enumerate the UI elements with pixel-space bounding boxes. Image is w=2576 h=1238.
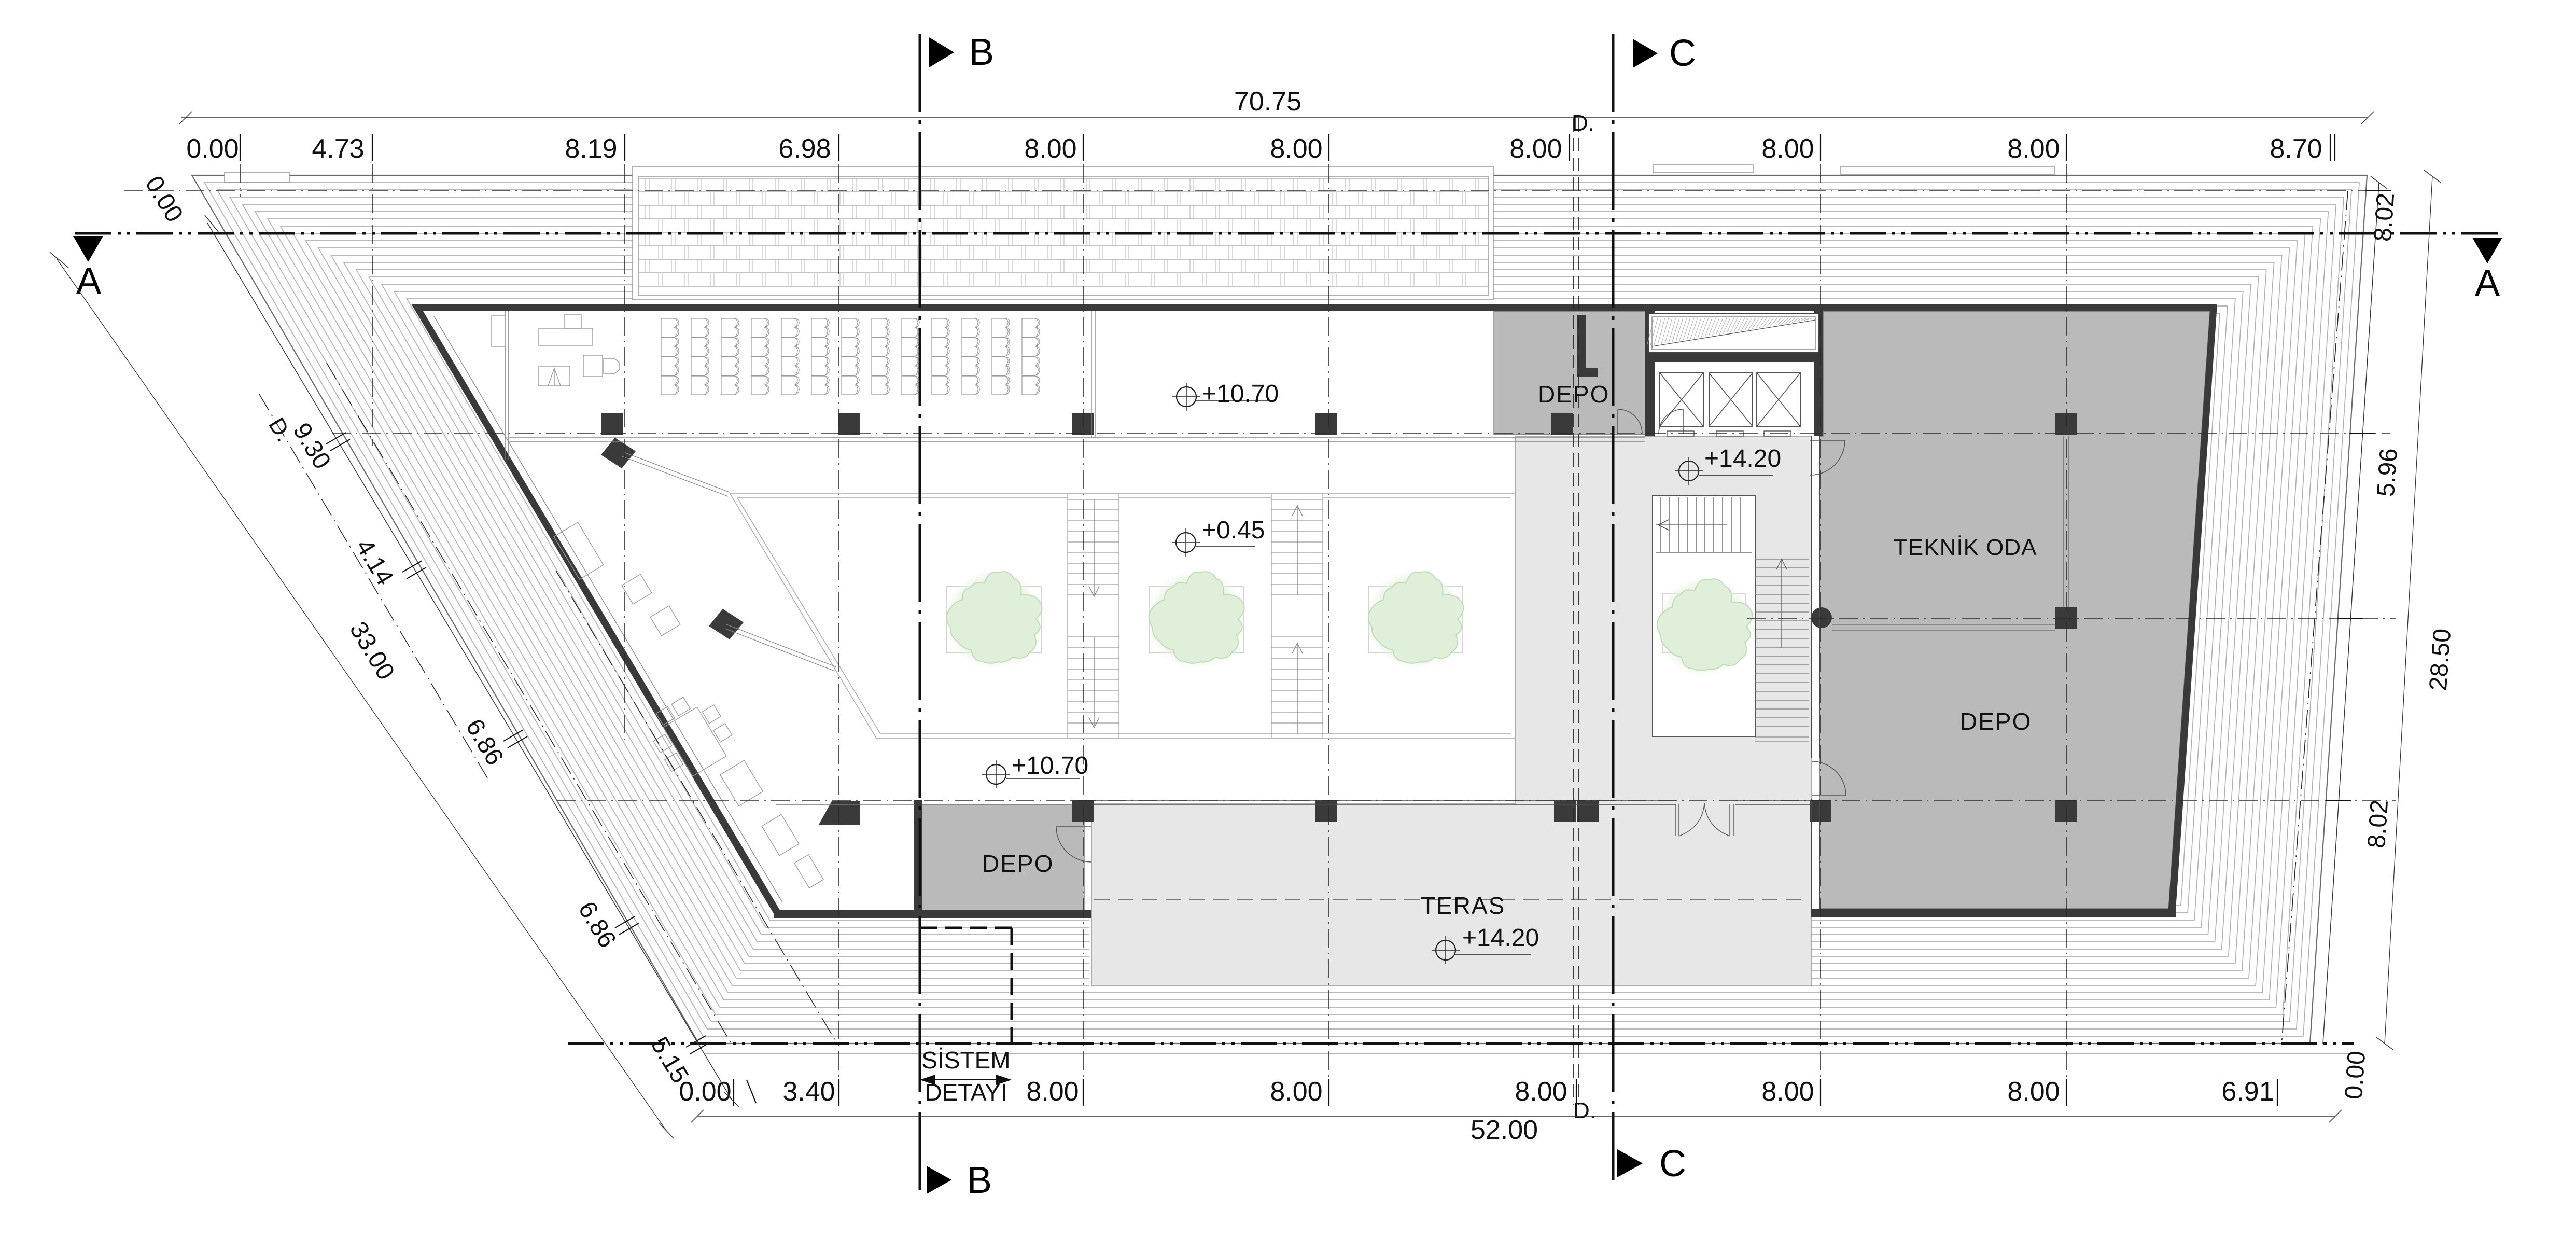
svg-text:DEPO: DEPO: [1538, 381, 1609, 408]
svg-text:DEPO: DEPO: [1960, 708, 2032, 735]
svg-text:0.00: 0.00: [679, 1077, 731, 1107]
svg-text:8.02: 8.02: [2369, 192, 2400, 242]
svg-text:8.00: 8.00: [1270, 134, 1322, 164]
svg-text:8.00: 8.00: [1515, 1077, 1567, 1107]
svg-text:TEKNİK ODA: TEKNİK ODA: [1894, 535, 2037, 560]
svg-text:DEPO: DEPO: [982, 850, 1054, 877]
svg-text:DETAYI: DETAYI: [925, 1079, 1007, 1106]
svg-text:8.00: 8.00: [1026, 1077, 1079, 1107]
svg-text:+14.20: +14.20: [1704, 445, 1781, 472]
svg-text:3.40: 3.40: [782, 1077, 835, 1107]
svg-text:28.50: 28.50: [2425, 628, 2456, 692]
svg-text:8.02: 8.02: [2363, 799, 2393, 849]
svg-text:D.: D.: [1573, 1098, 1596, 1123]
svg-text:+10.70: +10.70: [1012, 752, 1088, 780]
svg-text:B: B: [967, 1160, 992, 1201]
svg-text:8.00: 8.00: [2007, 134, 2060, 164]
svg-text:+0.45: +0.45: [1202, 517, 1265, 544]
svg-text:8.70: 8.70: [2270, 134, 2322, 164]
svg-text:8.00: 8.00: [2007, 1077, 2060, 1107]
svg-text:C: C: [1669, 33, 1696, 74]
svg-text:0.00: 0.00: [2340, 1050, 2371, 1100]
svg-text:TERAS: TERAS: [1421, 892, 1505, 919]
svg-text:+14.20: +14.20: [1462, 924, 1539, 952]
svg-text:A: A: [76, 260, 101, 302]
svg-text:5.96: 5.96: [2372, 447, 2403, 497]
svg-text:8.00: 8.00: [1761, 134, 1814, 164]
svg-text:8.00: 8.00: [1509, 134, 1562, 164]
svg-text:C: C: [1659, 1143, 1686, 1185]
svg-text:8.19: 8.19: [565, 134, 617, 164]
svg-text:+10.70: +10.70: [1202, 380, 1279, 408]
svg-text:8.00: 8.00: [1761, 1077, 1814, 1107]
svg-text:6.91: 6.91: [2221, 1077, 2274, 1107]
svg-text:4.73: 4.73: [312, 134, 364, 164]
svg-text:8.00: 8.00: [1024, 134, 1076, 164]
svg-text:0.00: 0.00: [186, 134, 239, 164]
svg-text:70.75: 70.75: [1234, 87, 1301, 117]
svg-text:6.98: 6.98: [778, 134, 831, 164]
svg-text:SİSTEM: SİSTEM: [921, 1047, 1010, 1074]
svg-text:B: B: [969, 32, 994, 73]
svg-text:D.: D.: [1572, 110, 1594, 136]
svg-text:52.00: 52.00: [1471, 1115, 1538, 1145]
svg-text:8.00: 8.00: [1270, 1077, 1322, 1107]
svg-text:A: A: [2475, 262, 2500, 304]
